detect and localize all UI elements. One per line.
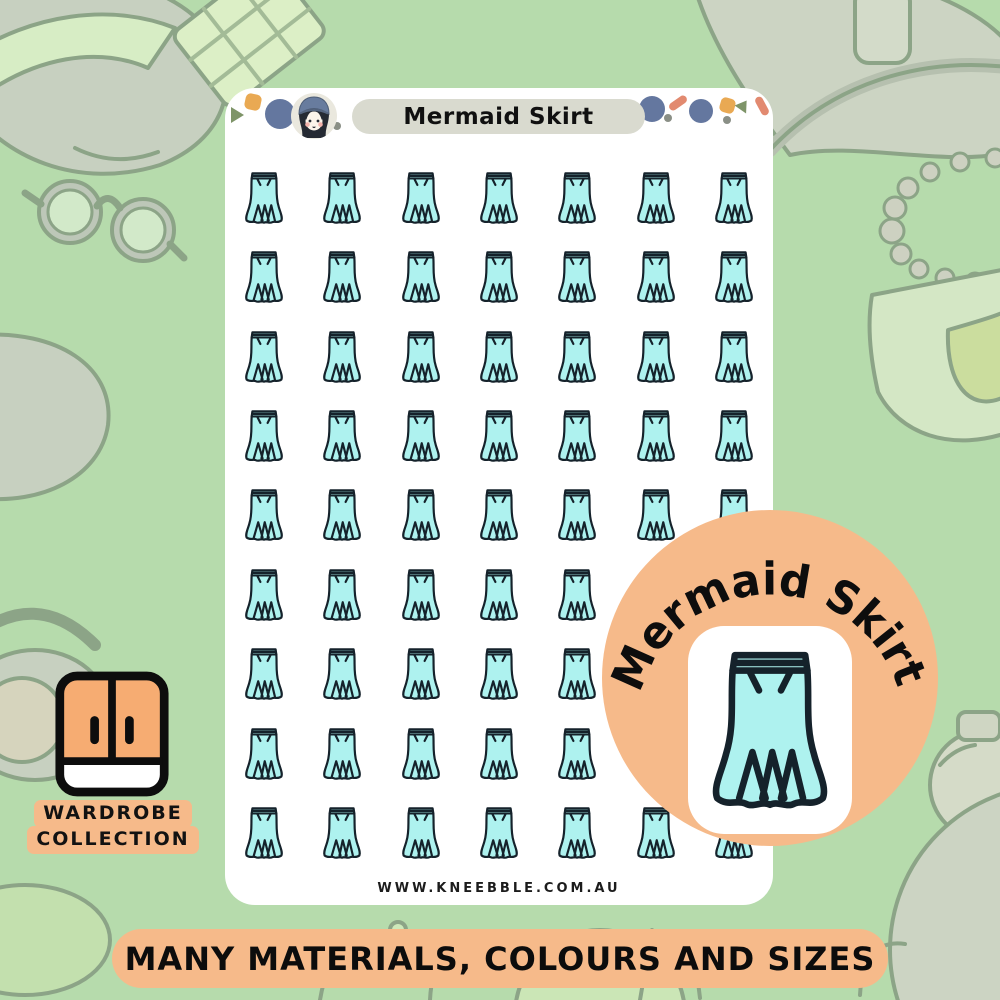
collection-line-2: COLLECTION bbox=[27, 826, 198, 854]
die-cut-sticker bbox=[688, 626, 852, 834]
mermaid-skirt-sticker bbox=[382, 635, 460, 714]
mermaid-skirt-icon bbox=[634, 248, 678, 306]
mermaid-skirt-icon bbox=[242, 804, 286, 862]
mermaid-skirt-icon bbox=[555, 248, 599, 306]
mermaid-skirt-sticker bbox=[303, 555, 381, 634]
mermaid-skirt-sticker bbox=[303, 396, 381, 475]
product-badge: Mermaid Skirt bbox=[602, 510, 938, 846]
collection-line-1: WARDROBE bbox=[34, 800, 191, 828]
mermaid-skirt-sticker bbox=[225, 396, 303, 475]
mermaid-skirt-icon bbox=[399, 645, 443, 703]
mermaid-skirt-icon bbox=[320, 248, 364, 306]
mermaid-skirt-sticker bbox=[225, 237, 303, 316]
mermaid-skirt-sticker bbox=[303, 476, 381, 555]
cloth-doodle bbox=[870, 268, 1000, 440]
mermaid-skirt-sticker bbox=[460, 237, 538, 316]
mermaid-skirt-icon bbox=[712, 248, 756, 306]
mermaid-skirt-sticker bbox=[303, 794, 381, 873]
mermaid-skirt-icon bbox=[477, 566, 521, 624]
mermaid-skirt-icon bbox=[399, 248, 443, 306]
mermaid-skirt-sticker bbox=[303, 714, 381, 793]
mermaid-skirt-sticker bbox=[225, 158, 303, 237]
confetti-triangle-icon bbox=[231, 107, 244, 123]
mermaid-skirt-sticker bbox=[616, 158, 694, 237]
mermaid-skirt-sticker bbox=[303, 237, 381, 316]
mermaid-skirt-icon bbox=[477, 169, 521, 227]
mermaid-skirt-sticker bbox=[460, 794, 538, 873]
mermaid-skirt-icon bbox=[477, 248, 521, 306]
mermaid-skirt-sticker bbox=[460, 158, 538, 237]
mermaid-skirt-icon bbox=[242, 248, 286, 306]
mermaid-skirt-sticker bbox=[382, 794, 460, 873]
mermaid-skirt-icon bbox=[477, 328, 521, 386]
mermaid-skirt-icon bbox=[477, 725, 521, 783]
mermaid-skirt-sticker bbox=[460, 476, 538, 555]
mermaid-skirt-sticker bbox=[695, 158, 773, 237]
mermaid-skirt-sticker bbox=[616, 237, 694, 316]
mermaid-skirt-icon bbox=[242, 486, 286, 544]
sheet-title: Mermaid Skirt bbox=[403, 104, 593, 130]
mermaid-skirt-sticker bbox=[695, 237, 773, 316]
mermaid-skirt-icon bbox=[555, 486, 599, 544]
sunglasses-doodle bbox=[25, 181, 184, 261]
confetti-circle-icon bbox=[689, 99, 713, 123]
mermaid-skirt-icon bbox=[399, 328, 443, 386]
mermaid-skirt-sticker bbox=[382, 476, 460, 555]
mermaid-skirt-sticker bbox=[538, 158, 616, 237]
mermaid-skirt-sticker bbox=[225, 555, 303, 634]
mermaid-skirt-icon bbox=[242, 566, 286, 624]
mermaid-skirt-sticker bbox=[382, 714, 460, 793]
collection-label: WARDROBE COLLECTION bbox=[18, 802, 208, 854]
mermaid-skirt-icon bbox=[320, 328, 364, 386]
confetti-dot-icon bbox=[723, 116, 731, 124]
mermaid-skirt-sticker bbox=[382, 555, 460, 634]
mermaid-skirt-sticker bbox=[225, 317, 303, 396]
wardrobe-icon bbox=[54, 670, 170, 800]
mermaid-skirt-sticker bbox=[225, 476, 303, 555]
mermaid-skirt-sticker bbox=[538, 396, 616, 475]
mermaid-skirt-sticker bbox=[303, 158, 381, 237]
website-url: WWW.KNEEBBLE.COM.AU bbox=[225, 881, 773, 896]
confetti-square-icon bbox=[244, 93, 263, 112]
mermaid-skirt-icon bbox=[320, 725, 364, 783]
mermaid-skirt-icon bbox=[399, 169, 443, 227]
mermaid-skirt-icon bbox=[242, 169, 286, 227]
mermaid-skirt-sticker bbox=[616, 317, 694, 396]
sheet-title-pill: Mermaid Skirt bbox=[352, 99, 645, 134]
mermaid-skirt-icon bbox=[242, 328, 286, 386]
mermaid-skirt-icon bbox=[555, 407, 599, 465]
mermaid-skirt-sticker bbox=[225, 635, 303, 714]
mermaid-skirt-sticker bbox=[382, 396, 460, 475]
mermaid-skirt-icon bbox=[242, 645, 286, 703]
mermaid-skirt-icon bbox=[555, 328, 599, 386]
mermaid-skirt-icon bbox=[477, 804, 521, 862]
mermaid-skirt-icon bbox=[634, 328, 678, 386]
mermaid-skirt-sticker bbox=[616, 396, 694, 475]
mermaid-skirt-icon bbox=[399, 486, 443, 544]
mermaid-skirt-sticker bbox=[225, 794, 303, 873]
mermaid-skirt-icon bbox=[320, 566, 364, 624]
mermaid-skirt-sticker bbox=[303, 317, 381, 396]
mermaid-skirt-icon bbox=[320, 169, 364, 227]
mermaid-skirt-sticker bbox=[382, 237, 460, 316]
mermaid-skirt-icon bbox=[555, 169, 599, 227]
mermaid-skirt-sticker bbox=[460, 714, 538, 793]
mermaid-skirt-large-icon bbox=[704, 640, 836, 820]
mermaid-skirt-sticker bbox=[460, 396, 538, 475]
mermaid-skirt-sticker bbox=[382, 317, 460, 396]
confetti-dash-icon bbox=[668, 94, 689, 112]
mermaid-skirt-icon bbox=[477, 645, 521, 703]
mermaid-skirt-sticker bbox=[460, 317, 538, 396]
banner-text: MANY MATERIALS, COLOURS AND SIZES bbox=[125, 940, 876, 978]
mermaid-skirt-icon bbox=[242, 725, 286, 783]
mermaid-skirt-icon bbox=[477, 407, 521, 465]
mermaid-skirt-icon bbox=[320, 486, 364, 544]
mermaid-skirt-icon bbox=[477, 486, 521, 544]
mermaid-skirt-icon bbox=[320, 645, 364, 703]
mermaid-skirt-icon bbox=[555, 725, 599, 783]
blob-doodle bbox=[0, 335, 109, 500]
mermaid-skirt-icon bbox=[555, 645, 599, 703]
necklace-doodle bbox=[880, 149, 1000, 292]
mermaid-skirt-icon bbox=[634, 407, 678, 465]
bottom-banner: MANY MATERIALS, COLOURS AND SIZES bbox=[112, 929, 888, 988]
girl-with-beanie-avatar bbox=[290, 92, 338, 140]
mermaid-skirt-sticker bbox=[303, 635, 381, 714]
mermaid-skirt-sticker bbox=[225, 714, 303, 793]
mermaid-skirt-icon bbox=[320, 407, 364, 465]
confetti-dot-icon bbox=[664, 114, 672, 122]
mermaid-skirt-icon bbox=[399, 407, 443, 465]
mermaid-skirt-icon bbox=[634, 169, 678, 227]
mermaid-skirt-sticker bbox=[695, 317, 773, 396]
mermaid-skirt-icon bbox=[242, 407, 286, 465]
mermaid-skirt-sticker bbox=[460, 555, 538, 634]
mermaid-skirt-icon bbox=[555, 804, 599, 862]
mermaid-skirt-icon bbox=[712, 328, 756, 386]
mermaid-skirt-sticker bbox=[538, 317, 616, 396]
mermaid-skirt-icon bbox=[320, 804, 364, 862]
mermaid-skirt-icon bbox=[712, 407, 756, 465]
mermaid-skirt-icon bbox=[399, 566, 443, 624]
mermaid-skirt-icon bbox=[399, 804, 443, 862]
mermaid-skirt-icon bbox=[712, 169, 756, 227]
mermaid-skirt-sticker bbox=[460, 635, 538, 714]
mermaid-skirt-sticker bbox=[382, 158, 460, 237]
mermaid-skirt-icon bbox=[399, 725, 443, 783]
mermaid-skirt-sticker bbox=[538, 237, 616, 316]
mermaid-skirt-sticker bbox=[695, 396, 773, 475]
confetti-triangle-icon bbox=[735, 96, 753, 113]
mermaid-skirt-icon bbox=[555, 566, 599, 624]
